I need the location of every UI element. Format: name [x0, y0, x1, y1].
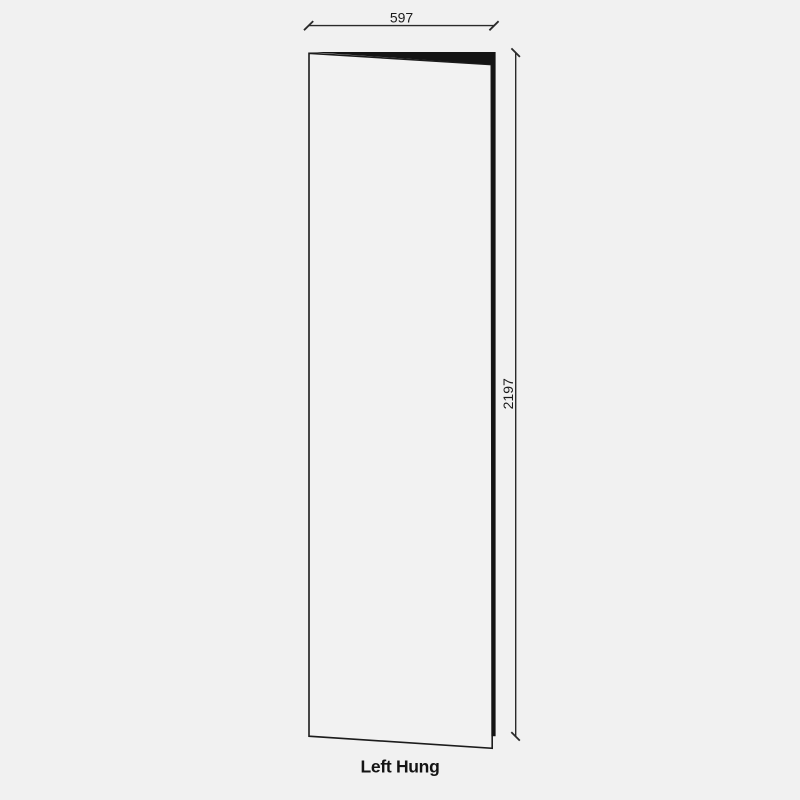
svg-text:Left Hung: Left Hung: [361, 757, 440, 777]
svg-text:597: 597: [390, 10, 414, 26]
svg-text:2197: 2197: [500, 378, 516, 409]
